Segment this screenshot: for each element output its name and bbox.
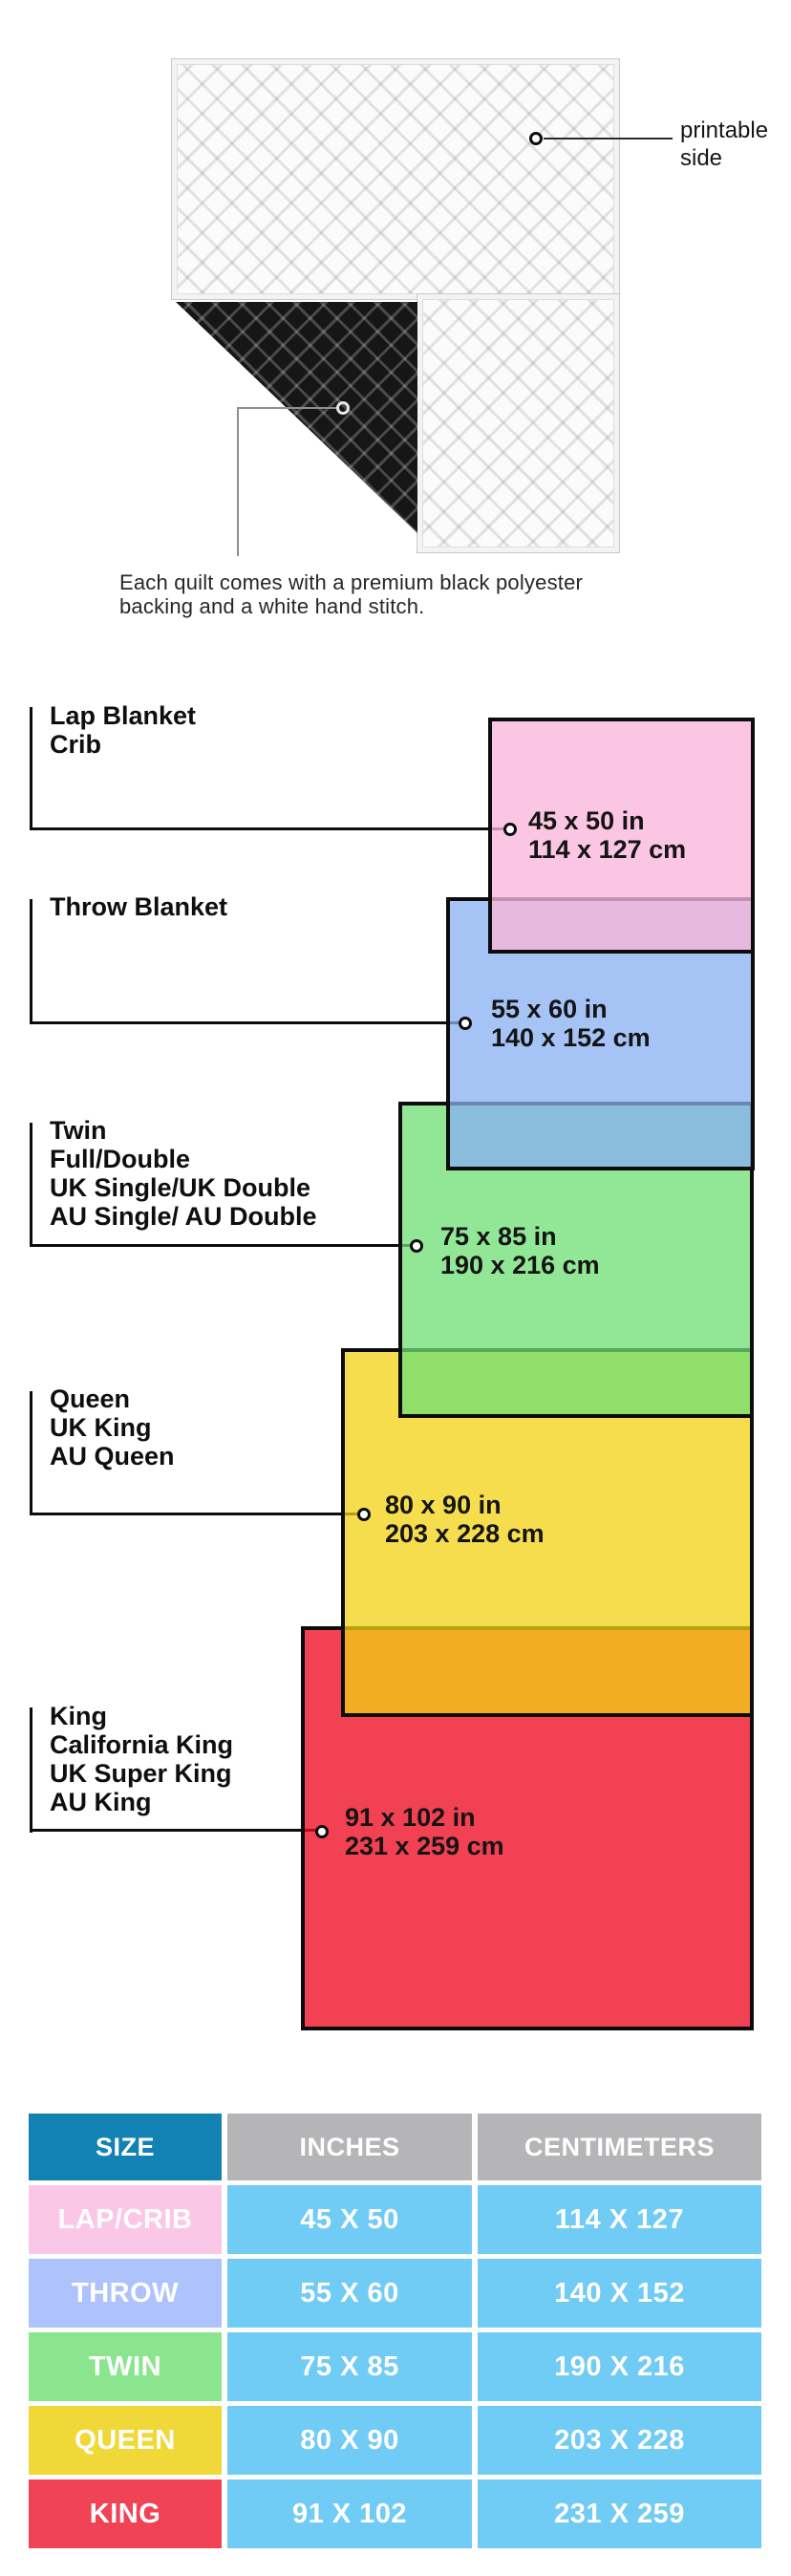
quilt-caption: Each quilt comes with a premium black po… <box>119 570 583 618</box>
quilt-caption-line1: Each quilt comes with a premium black po… <box>119 570 583 594</box>
size-label-queen-line2: UK King <box>50 1413 175 1442</box>
size-dims-king-cm: 231 x 259 cm <box>345 1832 504 1860</box>
table-row-king-cm: 231 X 259 <box>478 2479 761 2548</box>
connector-king-h <box>30 1829 316 1832</box>
size-label-king: King California King UK Super King AU Ki… <box>50 1702 233 1816</box>
quilt-front-bottom <box>417 294 619 552</box>
table-header-centimeters: CENTIMETERS <box>478 2114 761 2180</box>
printable-side-label-line2: side <box>680 144 768 172</box>
size-dims-throw-in: 55 x 60 in <box>491 995 651 1023</box>
printable-side-line <box>544 138 673 140</box>
table-header-inches: INCHES <box>227 2114 472 2180</box>
connector-queen-v <box>30 1391 32 1515</box>
connector-twin-v <box>30 1123 32 1247</box>
connector-king-v <box>30 1707 32 1833</box>
size-label-twin-line4: AU Single/ AU Double <box>50 1202 317 1231</box>
size-dims-lap-in: 45 x 50 in <box>528 806 686 835</box>
size-label-queen: Queen UK King AU Queen <box>50 1385 175 1470</box>
connector-twin-h <box>30 1244 411 1247</box>
size-dims-twin: 75 x 85 in 190 x 216 cm <box>440 1222 600 1279</box>
size-label-queen-line3: AU Queen <box>50 1442 175 1470</box>
table-row-queen-cm: 203 X 228 <box>478 2406 761 2475</box>
size-label-lap: Lap Blanket Crib <box>50 701 196 759</box>
size-dims-king-in: 91 x 102 in <box>345 1803 504 1832</box>
table-row-lap-inches: 45 X 50 <box>227 2185 472 2254</box>
table-header-size: SIZE <box>29 2114 222 2180</box>
size-label-king-line3: UK Super King <box>50 1759 233 1788</box>
size-label-lap-line2: Crib <box>50 730 196 759</box>
connector-queen-dot <box>357 1508 371 1521</box>
printable-side-dot <box>529 132 543 145</box>
quilt-caption-line2: backing and a white hand stitch. <box>119 594 583 618</box>
size-label-lap-line1: Lap Blanket <box>50 701 196 730</box>
quilt-front-top <box>172 59 619 299</box>
backing-line-horizontal <box>237 407 338 409</box>
size-label-king-line4: AU King <box>50 1788 233 1816</box>
size-label-twin-line1: Twin <box>50 1116 317 1145</box>
connector-lap-v <box>30 707 32 830</box>
size-dims-queen: 80 x 90 in 203 x 228 cm <box>385 1491 545 1548</box>
size-label-king-line2: California King <box>50 1730 233 1759</box>
size-dims-twin-cm: 190 x 216 cm <box>440 1251 600 1279</box>
connector-queen-h <box>30 1513 358 1515</box>
connector-throw-dot <box>459 1017 472 1030</box>
printable-side-label-line1: printable <box>680 117 768 144</box>
table-row-throw-cm: 140 X 152 <box>478 2259 761 2328</box>
size-dims-queen-cm: 203 x 228 cm <box>385 1519 545 1548</box>
table-row-queen-size: QUEEN <box>29 2406 222 2475</box>
size-dims-king: 91 x 102 in 231 x 259 cm <box>345 1803 504 1860</box>
size-label-twin-line3: UK Single/UK Double <box>50 1173 317 1202</box>
size-dims-queen-in: 80 x 90 in <box>385 1491 545 1519</box>
table-row-lap-cm: 114 X 127 <box>478 2185 761 2254</box>
table-row-king-inches: 91 X 102 <box>227 2479 472 2548</box>
connector-king-dot <box>315 1825 329 1838</box>
table-row-throw-inches: 55 X 60 <box>227 2259 472 2328</box>
size-label-twin-line2: Full/Double <box>50 1145 317 1173</box>
size-label-throw-line1: Throw Blanket <box>50 892 227 921</box>
table-row-twin-size: TWIN <box>29 2332 222 2401</box>
printable-side-label: printable side <box>680 117 768 172</box>
connector-twin-dot <box>410 1239 423 1253</box>
size-label-king-line1: King <box>50 1702 233 1730</box>
connector-lap-dot <box>503 823 517 836</box>
size-dims-lap: 45 x 50 in 114 x 127 cm <box>528 806 686 864</box>
table-row-queen-inches: 80 X 90 <box>227 2406 472 2475</box>
table-row-lap-size: LAP/CRIB <box>29 2185 222 2254</box>
size-label-throw: Throw Blanket <box>50 892 227 921</box>
size-dims-throw-cm: 140 x 152 cm <box>491 1023 651 1052</box>
backing-line-vertical <box>237 407 239 556</box>
size-label-queen-line1: Queen <box>50 1385 175 1413</box>
quilt-size-guide: printable side Each quilt comes with a p… <box>0 0 791 2576</box>
size-dims-throw: 55 x 60 in 140 x 152 cm <box>491 995 651 1052</box>
size-label-twin: Twin Full/Double UK Single/UK Double AU … <box>50 1116 317 1231</box>
quilt-black-backing-flap <box>176 302 417 533</box>
table-row-twin-inches: 75 X 85 <box>227 2332 472 2401</box>
table-row-twin-cm: 190 X 216 <box>478 2332 761 2401</box>
backing-dot <box>336 401 350 415</box>
table-row-king-size: KING <box>29 2479 222 2548</box>
size-dims-twin-in: 75 x 85 in <box>440 1222 600 1251</box>
connector-throw-h <box>30 1021 460 1024</box>
connector-throw-v <box>30 899 32 1024</box>
table-row-throw-size: THROW <box>29 2259 222 2328</box>
connector-lap-h <box>30 827 504 830</box>
size-dims-lap-cm: 114 x 127 cm <box>528 835 686 864</box>
